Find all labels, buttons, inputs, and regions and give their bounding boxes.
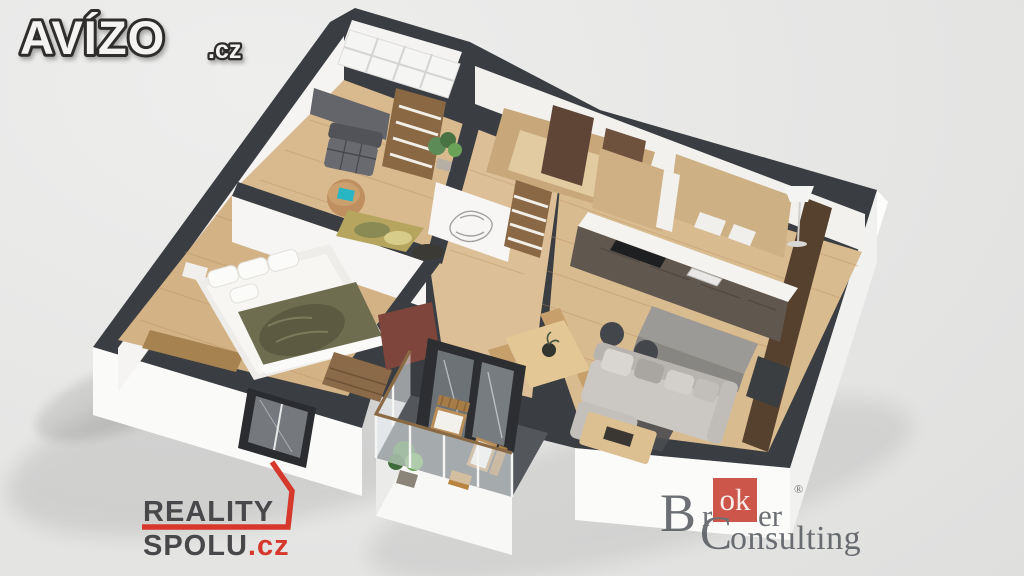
- consulting-initial-c: C: [700, 510, 732, 558]
- table-vase: [542, 343, 556, 357]
- screenshot-stage: AVÍZO .cz REALITY SPOLU.cz B r ok er ® C…: [0, 0, 1024, 576]
- avizo-logo-tld: .cz: [208, 36, 241, 64]
- avizo-logo-svg: AVÍZO .cz: [16, 8, 276, 72]
- reality-spolu-line2: SPOLU.cz: [143, 532, 290, 561]
- avizo-logo-text: AVÍZO: [20, 11, 165, 64]
- reality-spolu-tld: .cz: [248, 530, 290, 562]
- broker-initial-b: B: [660, 486, 696, 540]
- avizo-logo: AVÍZO .cz: [16, 8, 276, 77]
- reality-spolu-line2-text: SPOLU: [143, 530, 248, 562]
- reality-spolu-logo: REALITY SPOLU.cz: [141, 456, 321, 576]
- broker-consulting-watermark: B r ok er ® C onsulting: [658, 466, 908, 571]
- reality-spolu-line1: REALITY: [143, 498, 274, 527]
- ottoman: [327, 179, 365, 217]
- consulting-rest: onsulting: [730, 522, 861, 556]
- registered-trademark-icon: ®: [794, 483, 803, 495]
